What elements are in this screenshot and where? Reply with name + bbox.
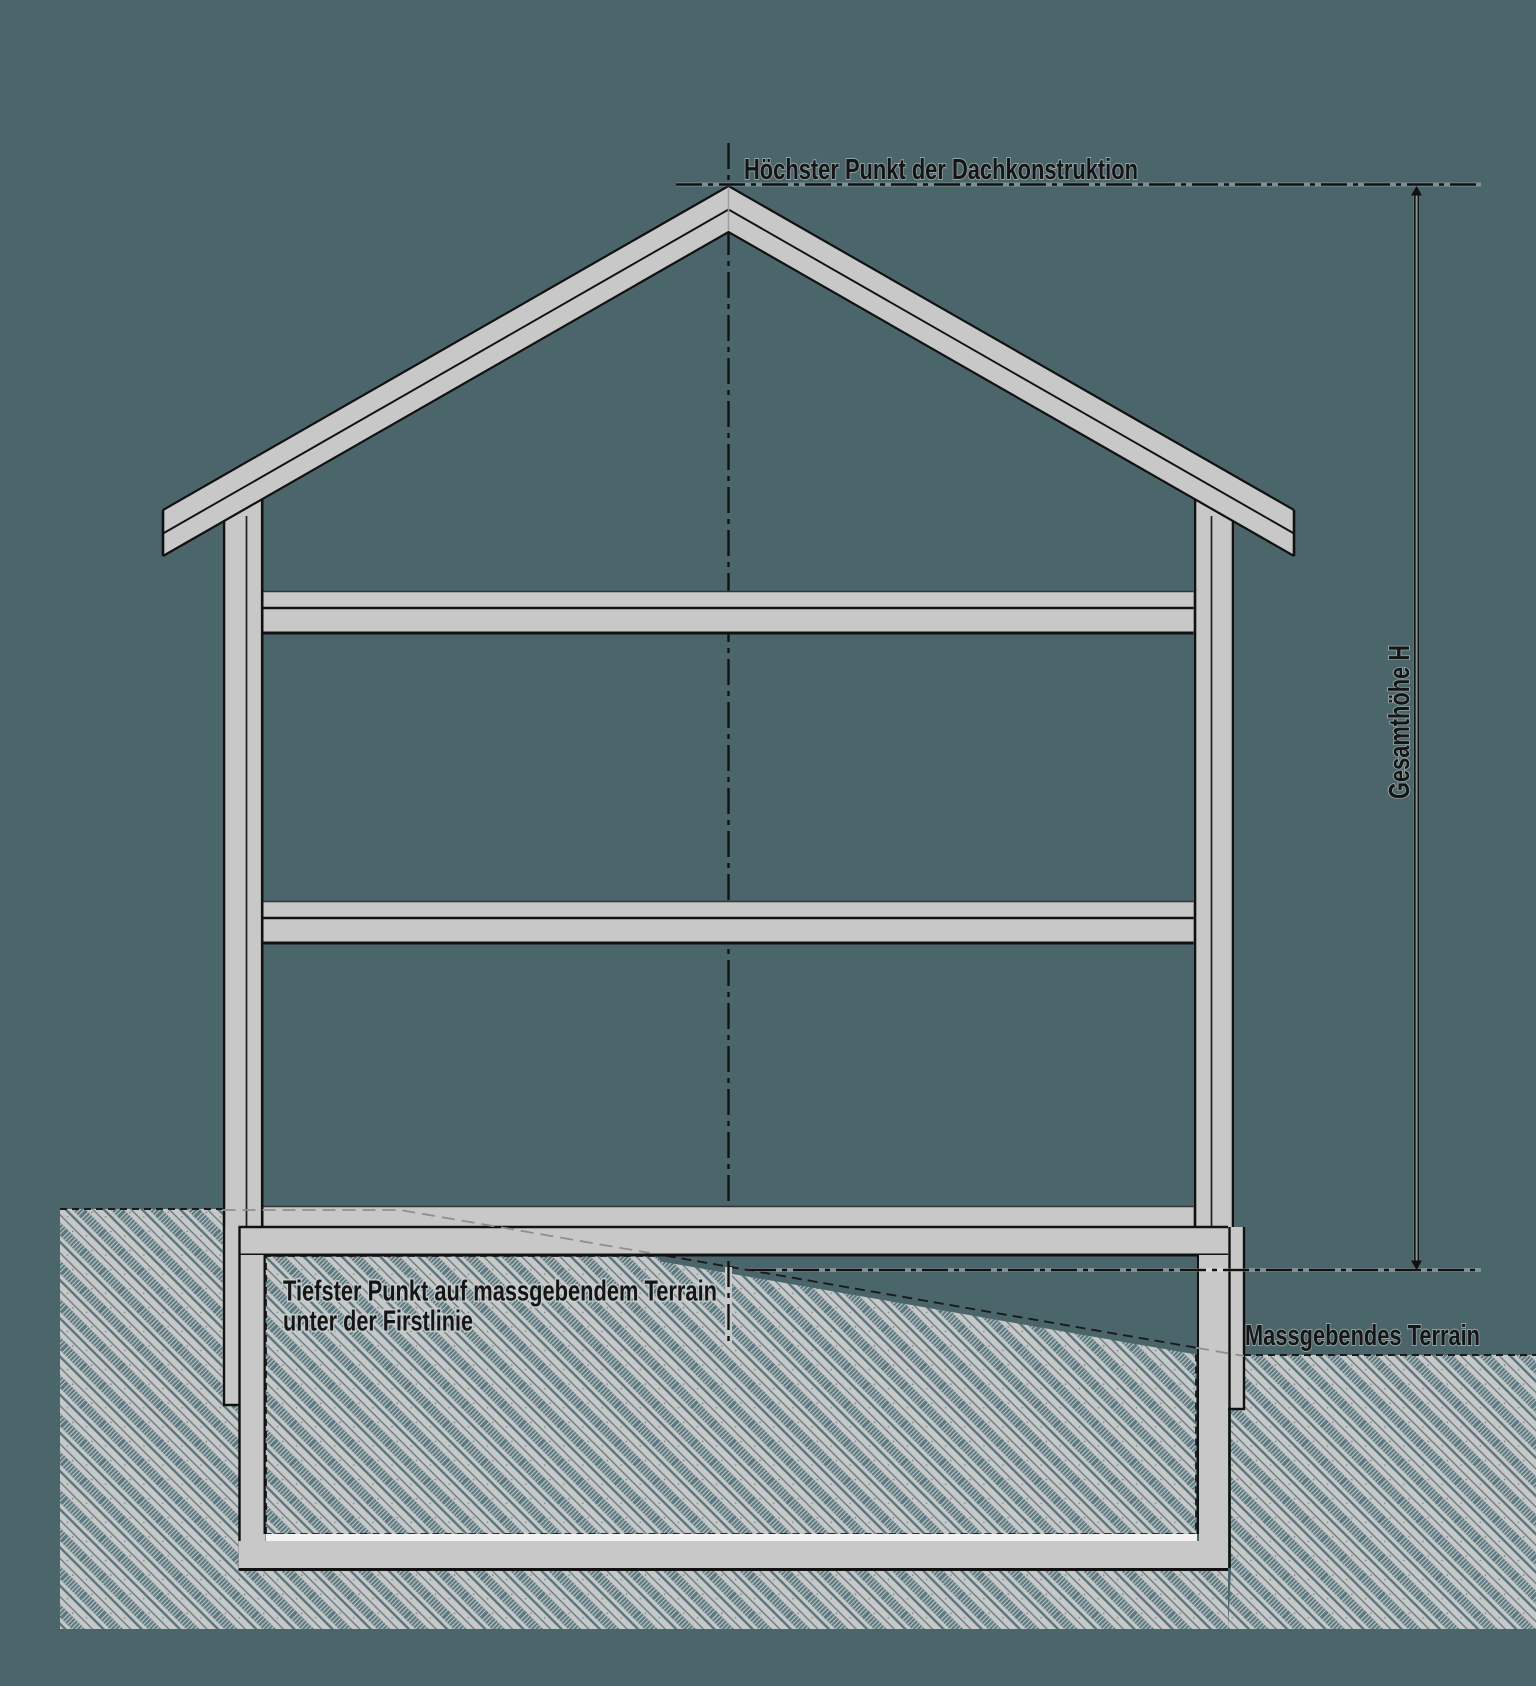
svg-text:Höchster Punkt der Dachkonstru: Höchster Punkt der Dachkonstruktion: [744, 154, 1138, 186]
svg-text:Tiefster Punkt auf massgebende: Tiefster Punkt auf massgebendem Terrain: [283, 1276, 717, 1308]
svg-text:Massgebendes Terrain: Massgebendes Terrain: [1245, 1320, 1480, 1352]
svg-text:Gesamthöhe H: Gesamthöhe H: [1384, 645, 1416, 799]
svg-text:unter der Firstlinie: unter der Firstlinie: [283, 1306, 473, 1338]
